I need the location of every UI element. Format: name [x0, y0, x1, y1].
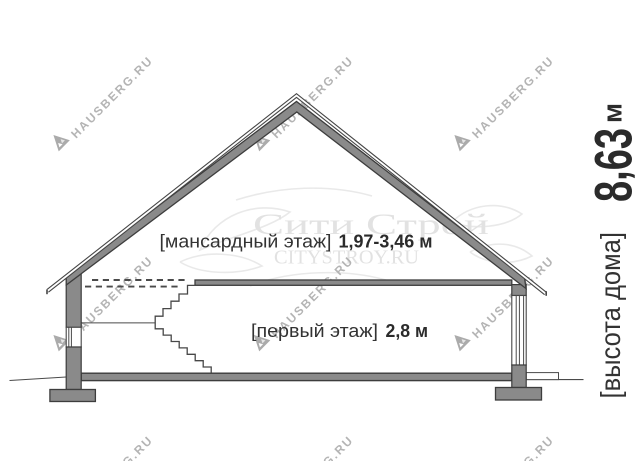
svg-text:8,63: 8,63 [580, 128, 642, 202]
svg-text:[высота дома]: [высота дома] [595, 232, 626, 399]
svg-text:[первый этаж]: [первый этаж] [251, 321, 378, 341]
svg-text:1,97-3,46 м: 1,97-3,46 м [339, 231, 433, 251]
svg-text:м: м [598, 103, 628, 123]
svg-text:2,8 м: 2,8 м [386, 321, 429, 341]
svg-text:[мансардный этаж]: [мансардный этаж] [160, 231, 332, 251]
